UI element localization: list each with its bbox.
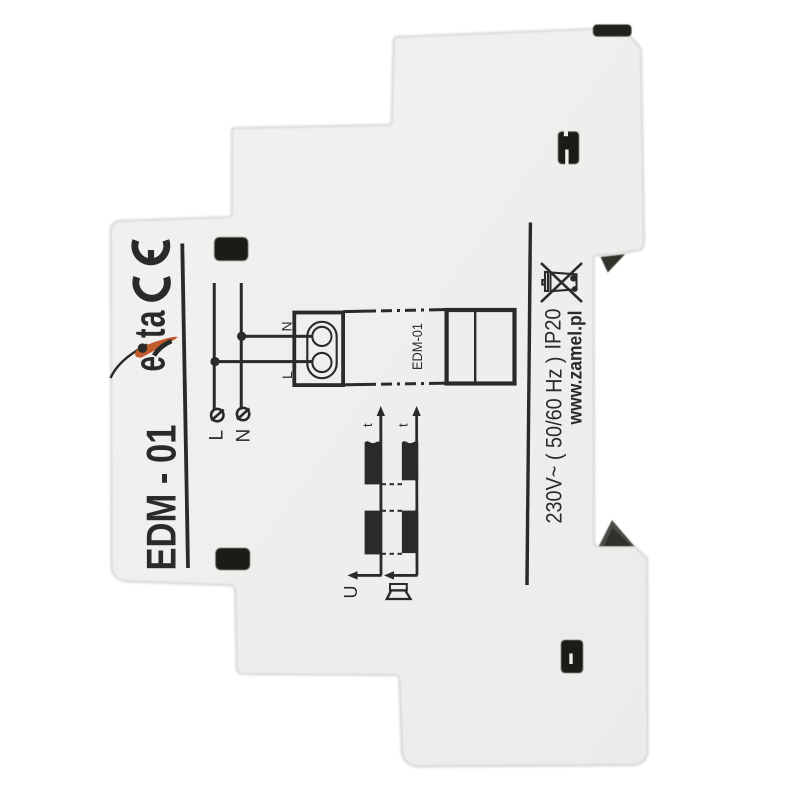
svg-text:IP20: IP20 bbox=[541, 309, 566, 350]
svg-text:L: L bbox=[279, 371, 295, 379]
svg-text:L: L bbox=[207, 430, 228, 441]
svg-text:EDM-01: EDM-01 bbox=[409, 323, 425, 370]
svg-text:t: t bbox=[126, 328, 175, 338]
svg-text:N: N bbox=[279, 321, 295, 331]
svg-text:N: N bbox=[234, 429, 255, 443]
svg-text:230V~ ( 50/60 Hz ): 230V~ ( 50/60 Hz ) bbox=[542, 357, 567, 524]
svg-text:t: t bbox=[360, 423, 375, 427]
svg-text:U: U bbox=[341, 586, 361, 599]
svg-text:e: e bbox=[126, 356, 175, 372]
svg-text:a: a bbox=[126, 310, 175, 327]
svg-text:t: t bbox=[396, 423, 411, 427]
svg-text:www.zamel.pl: www.zamel.pl bbox=[566, 311, 587, 426]
svg-text:EDM - 01: EDM - 01 bbox=[138, 425, 185, 571]
